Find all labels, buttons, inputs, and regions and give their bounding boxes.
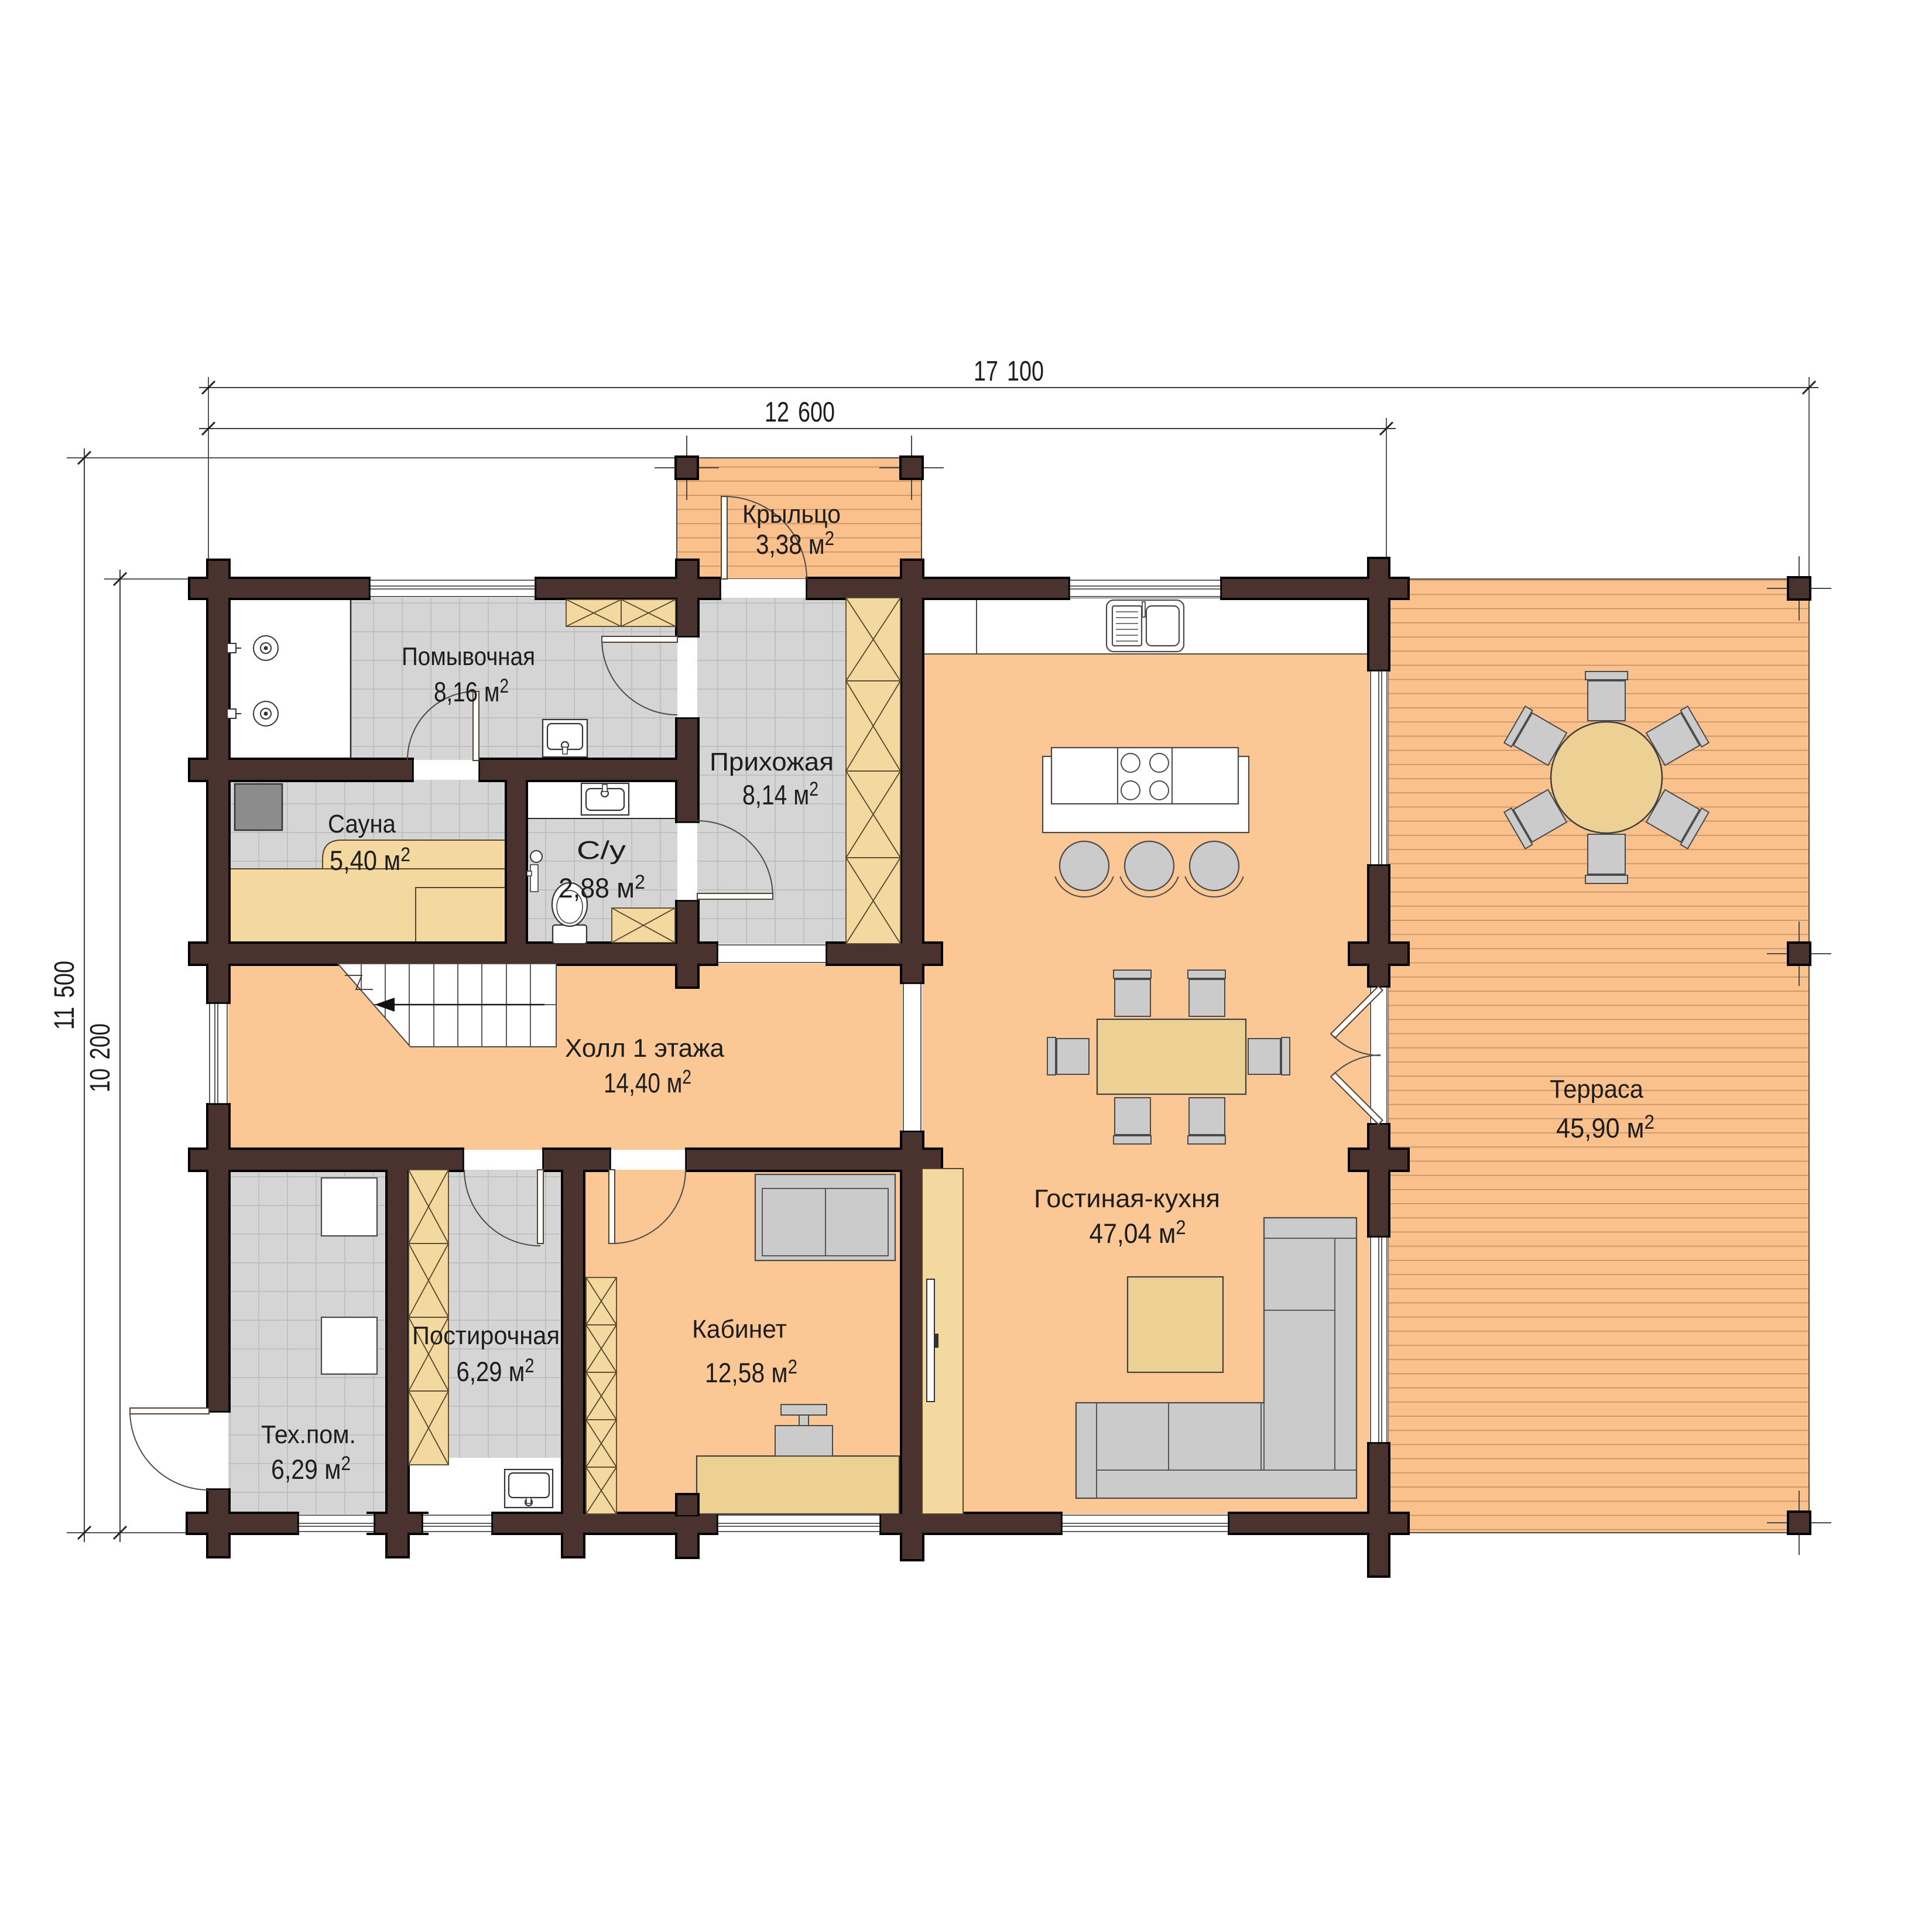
svg-text:45,90 м2: 45,90 м2	[1556, 1111, 1654, 1143]
svg-text:3,38 м2: 3,38 м2	[756, 527, 834, 560]
svg-text:8,14 м2: 8,14 м2	[742, 778, 818, 810]
svg-text:5,40 м2: 5,40 м2	[330, 844, 410, 876]
svg-text:17 100: 17 100	[974, 356, 1044, 387]
svg-text:6,29 м2: 6,29 м2	[271, 1453, 351, 1485]
svg-text:14,40 м2: 14,40 м2	[604, 1066, 691, 1098]
svg-text:Кабинет: Кабинет	[692, 1315, 787, 1344]
svg-text:10 200: 10 200	[85, 1023, 116, 1092]
svg-text:11 500: 11 500	[49, 961, 80, 1030]
svg-text:Прихожая: Прихожая	[710, 748, 834, 776]
svg-text:Постирочная: Постирочная	[412, 1321, 560, 1350]
svg-text:Терраса: Терраса	[1550, 1075, 1643, 1104]
svg-text:С/у: С/у	[577, 836, 626, 865]
svg-text:12 600: 12 600	[765, 397, 835, 428]
svg-text:12,58 м2: 12,58 м2	[705, 1356, 797, 1388]
svg-text:6,29 м2: 6,29 м2	[457, 1355, 535, 1387]
svg-text:Помывочная: Помывочная	[402, 642, 535, 671]
svg-text:8,16 м2: 8,16 м2	[434, 675, 509, 707]
svg-text:47,04 м2: 47,04 м2	[1090, 1217, 1186, 1249]
svg-text:Сауна: Сауна	[328, 810, 396, 838]
svg-text:2,88 м2: 2,88 м2	[559, 871, 645, 903]
svg-text:Тех.пом.: Тех.пом.	[261, 1420, 356, 1449]
svg-text:Крыльцо: Крыльцо	[742, 500, 841, 529]
svg-text:Гостиная-кухня: Гостиная-кухня	[1034, 1184, 1220, 1213]
svg-text:Холл 1 этажа: Холл 1 этажа	[565, 1034, 725, 1063]
